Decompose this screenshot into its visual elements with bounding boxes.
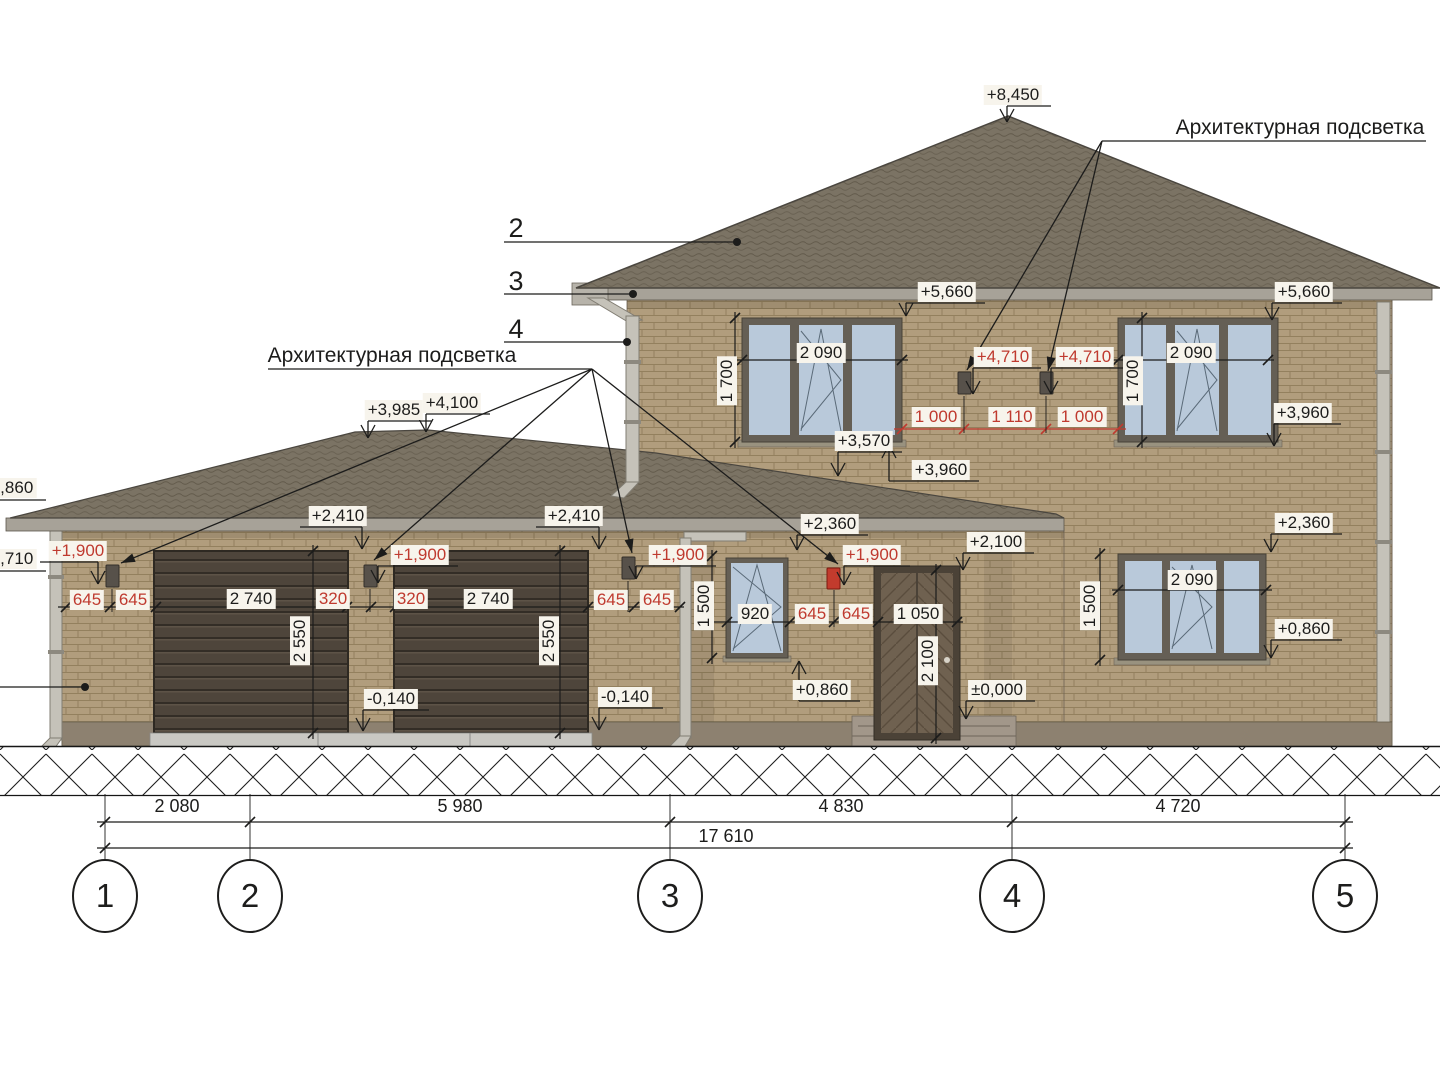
arch-lighting-label-right: Архитектурная подсветка — [1176, 118, 1425, 138]
dimension-label: 2 550 — [290, 617, 310, 666]
annotation-labels: Архитектурная подсветка Архитектурная по… — [0, 0, 1440, 1080]
dimension-label: 320 — [394, 589, 428, 609]
axis-dimension-label: 5 980 — [437, 796, 482, 816]
axis-dimension-label: 2 080 — [154, 796, 199, 816]
dimension-label: 2 740 — [227, 589, 276, 609]
elevation-mark-label: 2,860 — [0, 478, 36, 498]
dimension-label: 920 — [738, 604, 772, 624]
elevation-mark-label: +4,710 — [1056, 347, 1114, 367]
dimension-label: 2 740 — [464, 589, 513, 609]
elevation-mark-label: 2,710 — [0, 549, 36, 569]
elevation-mark-label: +4,100 — [423, 393, 481, 413]
axis-number-3: 3 — [661, 877, 679, 915]
material-callout-gutter: 3 — [508, 271, 523, 291]
elevation-mark-label: +2,360 — [1275, 513, 1333, 533]
dimension-label: 2 100 — [918, 637, 938, 686]
axis-bubble-2: 2 — [217, 859, 283, 933]
elevation-mark-label: +0,860 — [793, 680, 851, 700]
elevation-mark-label: +3,985 — [365, 400, 423, 420]
elevation-mark-label: +3,960 — [912, 460, 970, 480]
dimension-label: 2 090 — [1167, 343, 1216, 363]
elevation-mark-label: +3,960 — [1274, 403, 1332, 423]
dimension-label: 2 090 — [1168, 570, 1217, 590]
elevation-mark-label: +8,450 — [984, 85, 1042, 105]
elevation-mark-label: +2,100 — [967, 532, 1025, 552]
dimension-label: 1 700 — [717, 357, 737, 406]
dimension-label: 645 — [795, 604, 829, 624]
axis-number-2: 2 — [241, 877, 259, 915]
dimension-label: 2 550 — [539, 617, 559, 666]
arch-lighting-label-left: Архитектурная подсветка — [268, 346, 517, 366]
dimension-label: 645 — [839, 604, 873, 624]
elevation-mark-label: +2,410 — [545, 506, 603, 526]
elevation-mark-label: -0,140 — [364, 689, 418, 709]
material-callout-downpipe: 4 — [508, 319, 523, 339]
axis-number-4: 4 — [1003, 877, 1021, 915]
elevation-mark-label: +5,660 — [1275, 282, 1333, 302]
material-callout-roof: 2 — [508, 218, 523, 238]
dimension-label: 2 090 — [797, 343, 846, 363]
axis-number-1: 1 — [96, 877, 114, 915]
dimension-label: 645 — [116, 590, 150, 610]
dimension-label: 320 — [316, 589, 350, 609]
elevation-mark-label: +1,900 — [649, 545, 707, 565]
elevation-mark-label: +2,360 — [801, 514, 859, 534]
elevation-mark-label: ±0,000 — [968, 680, 1026, 700]
dimension-label: 1 500 — [694, 582, 714, 631]
dimension-label: 645 — [640, 590, 674, 610]
axis-dimension-label: 4 720 — [1155, 796, 1200, 816]
dimension-label: 1 700 — [1123, 357, 1143, 406]
dimension-label: 1 050 — [894, 604, 943, 624]
axis-bubble-1: 1 — [72, 859, 138, 933]
axis-dimension-label: 4 830 — [818, 796, 863, 816]
dimension-label: 1 110 — [988, 407, 1035, 427]
elevation-mark-label: +5,660 — [918, 282, 976, 302]
elevation-mark-label: +1,900 — [391, 545, 449, 565]
facade-elevation-drawing: Архитектурная подсветка Архитектурная по… — [0, 0, 1440, 1080]
dimension-label: 1 500 — [1080, 582, 1100, 631]
dimension-label: 645 — [594, 590, 628, 610]
dimension-label: 1 000 — [1058, 407, 1107, 427]
axis-bubble-3: 3 — [637, 859, 703, 933]
axis-bubble-5: 5 — [1312, 859, 1378, 933]
elevation-mark-label: +0,860 — [1275, 619, 1333, 639]
elevation-mark-label: +3,570 — [835, 431, 893, 451]
axis-number-5: 5 — [1336, 877, 1354, 915]
dimension-label: 645 — [70, 590, 104, 610]
axis-bubble-4: 4 — [979, 859, 1045, 933]
elevation-mark-label: -0,140 — [598, 687, 652, 707]
elevation-mark-label: +1,900 — [843, 545, 901, 565]
elevation-mark-label: +4,710 — [974, 347, 1032, 367]
elevation-mark-label: +2,410 — [309, 506, 367, 526]
axis-dimension-label: 17 610 — [698, 826, 753, 846]
elevation-mark-label: +1,900 — [49, 541, 107, 561]
dimension-label: 1 000 — [912, 407, 961, 427]
